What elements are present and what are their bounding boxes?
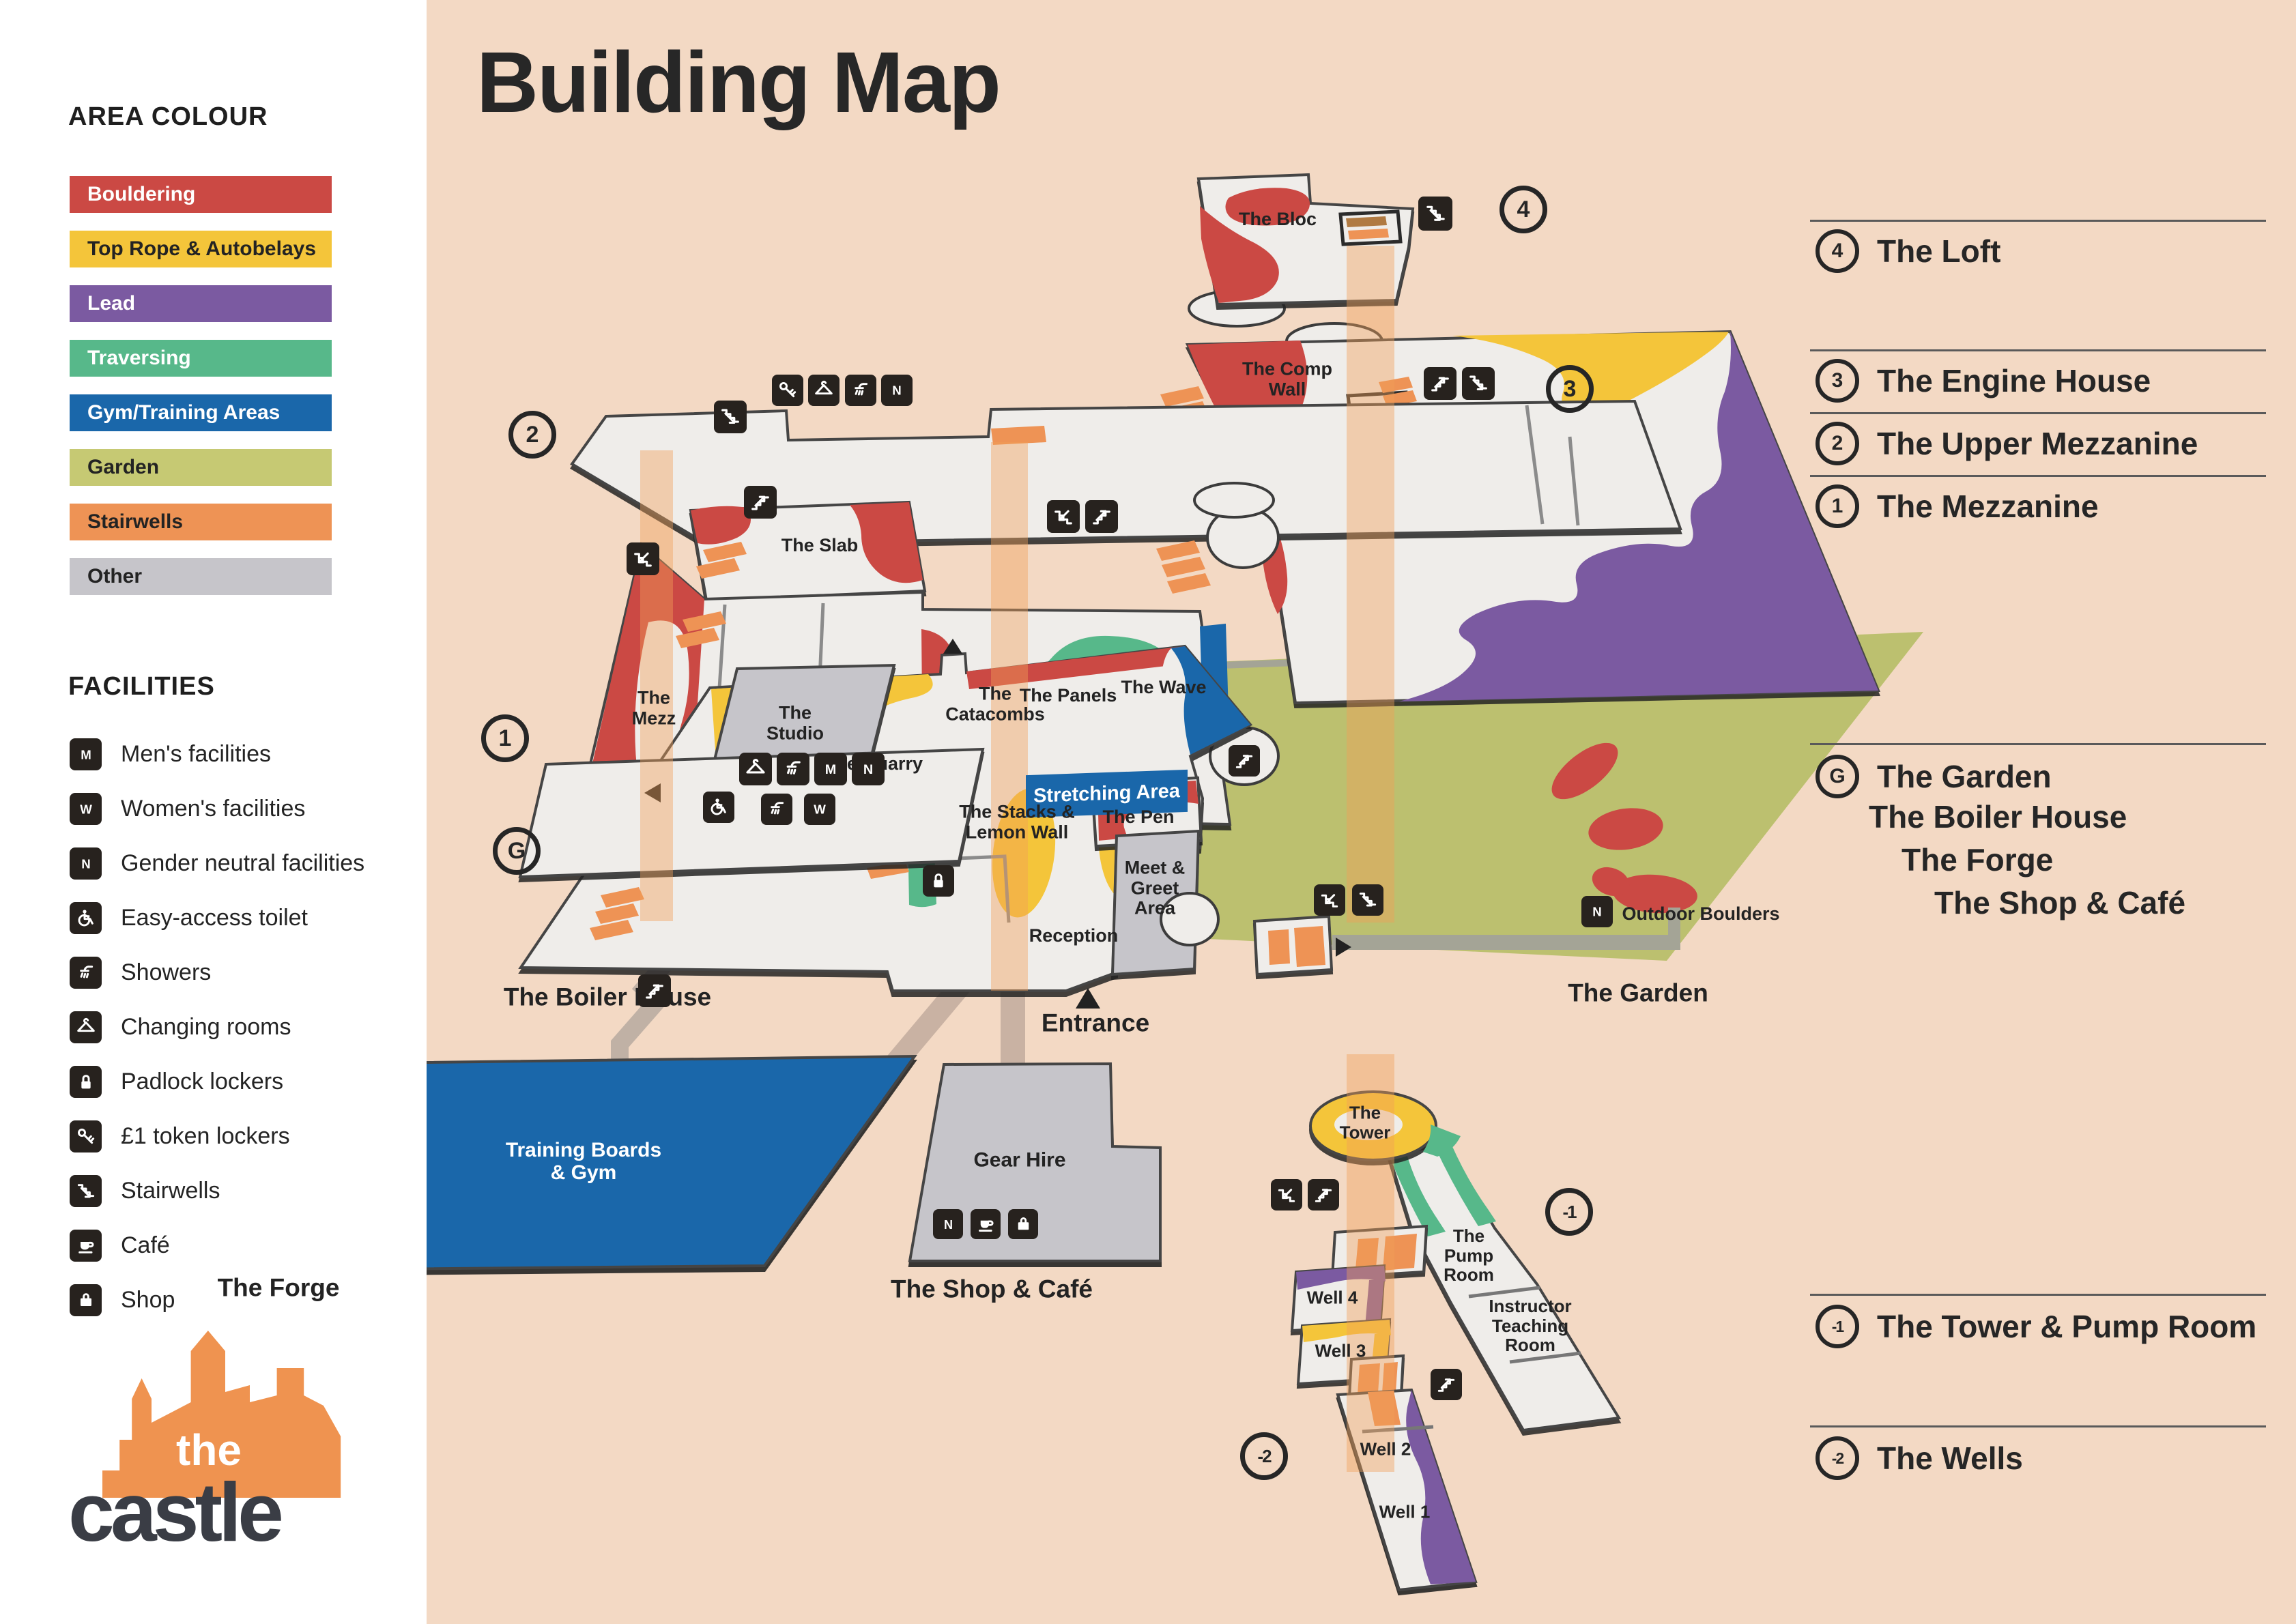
legend-swatch-lead: Lead (70, 285, 332, 322)
pump-room-plate (1389, 1144, 1619, 1430)
easy-access-icon (70, 902, 102, 934)
garden-stairwell-ramp (1294, 926, 1325, 967)
label-wave: The Wave (1121, 678, 1206, 698)
gender-neutral-icon: N (881, 375, 913, 406)
token-icon (772, 375, 803, 406)
facility-label: Stairwells (121, 1178, 220, 1204)
map-floor-badge-3: 3 (1546, 365, 1594, 413)
stairwell-downleft-icon (627, 542, 659, 575)
label-comp-wall: The Comp Wall (1233, 359, 1342, 399)
floor-4-badge: 4 (1816, 229, 1859, 273)
svg-text:N: N (1592, 905, 1601, 919)
showers-icon (761, 794, 792, 825)
legend-swatch-other: Other (70, 558, 332, 595)
facility-label: Padlock lockers (121, 1069, 283, 1095)
floor-g-line3: The Forge (1902, 841, 2053, 878)
floor-label-mezzanine: 1 The Mezzanine (1816, 484, 2099, 528)
label-garden: The Garden (1568, 980, 1708, 1008)
floor-2-badge: 2 (1816, 422, 1859, 465)
legend-swatch-label: Lead (87, 292, 135, 315)
womens-icon: W (70, 793, 102, 825)
floor-g-badge: G (1816, 755, 1859, 798)
facility-label: Gender neutral facilities (121, 850, 364, 877)
logo-castle: castle (68, 1464, 280, 1560)
stairwell-up-icon (1229, 745, 1260, 777)
floor-label-tower-pump: -1 The Tower & Pump Room (1816, 1305, 2256, 1348)
legend-swatch-label: Gym/Training Areas (87, 401, 280, 424)
label-outdoor-boulders: Outdoor Boulders (1622, 904, 1780, 925)
floor-label-wells: -2 The Wells (1816, 1436, 2023, 1480)
svg-text:N: N (81, 856, 90, 871)
svg-text:W: W (80, 802, 92, 816)
floor-label-ground: G The Garden (1816, 755, 2052, 798)
stairwell-downleft-icon (1271, 1179, 1302, 1210)
reception-path (885, 991, 971, 1059)
divider (1810, 1425, 2266, 1427)
facility-label: Men's facilities (121, 741, 271, 768)
facility-row-gender-neutral: NGender neutral facilities (70, 847, 364, 880)
floor-g-line4: The Shop & Café (1934, 884, 2185, 921)
label-pen: The Pen (1102, 807, 1174, 828)
easy-access-icon (703, 792, 734, 823)
legend-swatch-gym-training-areas: Gym/Training Areas (70, 394, 332, 431)
label-well4: Well 4 (1307, 1288, 1358, 1308)
legend-swatch-garden: Garden (70, 449, 332, 486)
label-well2: Well 2 (1360, 1440, 1411, 1460)
mens-icon: M (814, 753, 847, 785)
facility-label: Easy-access toilet (121, 905, 308, 931)
label-panels: The Panels (1020, 686, 1117, 706)
stairwell-up-icon (1431, 1369, 1462, 1400)
label-bloc: The Bloc (1239, 209, 1317, 230)
floor-minus2-badge: -2 (1816, 1436, 1859, 1480)
mezz-right-stair-ramp (1156, 540, 1211, 594)
floor-label-loft: 4 The Loft (1816, 229, 2000, 273)
area-colour-legend: BoulderingTop Rope & AutobelaysLeadTrave… (70, 176, 332, 613)
gender-neutral-icon: N (1581, 896, 1613, 927)
legend-swatch-bouldering: Bouldering (70, 176, 332, 213)
label-slab: The Slab (781, 536, 859, 556)
facilities-legend: MMen's facilitiesWWomen's facilitiesNGen… (70, 738, 364, 1339)
map-floor-badge-G: G (493, 827, 541, 875)
legend-swatch-top-rope-autobelays: Top Rope & Autobelays (70, 231, 332, 267)
stairwell-up-icon (1424, 367, 1456, 400)
legend-swatch-label: Bouldering (87, 183, 195, 206)
map-floor-badge-4: 4 (1499, 186, 1547, 233)
legend-swatch-label: Garden (87, 456, 159, 479)
token-icon (70, 1120, 102, 1152)
showers-icon (70, 957, 102, 989)
facility-row-token: £1 token lockers (70, 1120, 364, 1152)
facility-label: Shop (121, 1287, 175, 1314)
stairwell-down-icon (1462, 367, 1495, 400)
label-well3: Well 3 (1315, 1342, 1366, 1361)
map-floor-badge-2: 2 (508, 411, 556, 459)
entrance-path (1001, 991, 1025, 1067)
svg-text:M: M (81, 747, 91, 762)
gender-neutral-icon: N (852, 753, 885, 785)
floor-4-name: The Loft (1877, 233, 2000, 270)
facility-row-mens: MMen's facilities (70, 738, 364, 770)
svg-text:M: M (825, 762, 837, 777)
legend-swatch-stairwells: Stairwells (70, 504, 332, 540)
showers-icon (777, 753, 809, 785)
svg-text:W: W (814, 802, 826, 817)
changing-icon (739, 753, 772, 785)
floor-3-name: The Engine House (1877, 362, 2151, 399)
shop-icon (1008, 1209, 1038, 1239)
label-shop-cafe: The Shop & Café (891, 1276, 1093, 1304)
map-floor-badge-1: 1 (481, 714, 529, 762)
womens-icon: W (804, 794, 835, 825)
gender-neutral-icon: N (933, 1209, 963, 1239)
label-studio: The Studio (756, 703, 835, 743)
comp-mat-oval (1194, 483, 1274, 517)
divider (1810, 412, 2266, 414)
legend-sidebar: AREA COLOUR BoulderingTop Rope & Autobel… (0, 0, 427, 1624)
label-entrance: Entrance (1042, 1010, 1149, 1038)
divider (1810, 349, 2266, 351)
label-forge: The Forge (218, 1275, 340, 1303)
changing-icon (70, 1011, 102, 1043)
gender-neutral-icon: N (70, 847, 102, 880)
changing-icon (808, 375, 840, 406)
stairwell-down-icon (1352, 884, 1383, 916)
label-stacks: The Stacks & Lemon Wall (944, 802, 1091, 842)
entrance-marker (1076, 988, 1100, 1009)
legend-swatch-label: Other (87, 565, 142, 588)
area-colour-title: AREA COLOUR (68, 102, 268, 132)
padlock-icon (923, 865, 954, 897)
facility-label: £1 token lockers (121, 1123, 290, 1150)
divider (1810, 475, 2266, 477)
label-mezz: The Mezz (623, 688, 685, 728)
label-training-boards: Training Boards & Gym (502, 1139, 665, 1184)
facility-row-changing: Changing rooms (70, 1011, 364, 1043)
label-pump-room: The Pump Room (1431, 1226, 1506, 1285)
label-boiler-house: The Boiler House (504, 984, 711, 1012)
facility-row-easy-access: Easy-access toilet (70, 902, 364, 934)
divider (1810, 743, 2266, 745)
castle-logo: the castle (68, 1331, 355, 1597)
garden-stairwell-treads (1268, 929, 1290, 965)
label-instructor: Instructor Teaching Room (1465, 1296, 1595, 1355)
label-gear-hire: Gear Hire (973, 1149, 1065, 1172)
facility-row-womens: WWomen's facilities (70, 793, 364, 825)
stairwell-down-icon (714, 401, 747, 433)
floor-minus2-name: The Wells (1877, 1440, 2023, 1477)
facility-row-padlock: Padlock lockers (70, 1066, 364, 1098)
cafe-icon (971, 1209, 1001, 1239)
map-floor-badge--2: -2 (1240, 1432, 1288, 1480)
padlock-icon (70, 1066, 102, 1098)
facility-label: Showers (121, 959, 211, 986)
facility-label: Café (121, 1232, 170, 1259)
legend-swatch-label: Traversing (87, 347, 191, 370)
stairwell-up-icon (1085, 500, 1118, 533)
svg-text:N: N (943, 1217, 952, 1231)
stairwell-downleft-icon (1314, 884, 1345, 916)
svg-text:N: N (863, 762, 873, 777)
floor-1-name: The Mezzanine (1877, 488, 2099, 525)
upper-mezzanine-stair-ramp (991, 426, 1046, 445)
legend-swatch-label: Top Rope & Autobelays (87, 237, 316, 261)
showers-icon (845, 375, 876, 406)
facility-row-stairwell: Stairwells (70, 1175, 364, 1207)
label-tower: The Tower (1328, 1103, 1403, 1142)
page-title: Building Map (476, 33, 1000, 132)
facility-label: Changing rooms (121, 1014, 291, 1041)
map-floor-badge--1: -1 (1545, 1188, 1593, 1236)
stairwell-up-icon (1308, 1179, 1339, 1210)
facility-row-cafe: Café (70, 1230, 364, 1262)
building-map-page: AREA COLOUR BoulderingTop Rope & Autobel… (0, 0, 2296, 1624)
floor-minus1-name: The Tower & Pump Room (1877, 1308, 2256, 1345)
mens-icon: M (70, 738, 102, 770)
label-well1: Well 1 (1379, 1503, 1431, 1522)
floor-1-badge: 1 (1816, 484, 1859, 528)
svg-text:N: N (892, 383, 901, 398)
facilities-title: FACILITIES (68, 672, 215, 701)
facility-label: Women's facilities (121, 796, 305, 822)
floor-label-engine-house: 3 The Engine House (1816, 359, 2151, 403)
legend-swatch-label: Stairwells (87, 510, 183, 534)
stairwell-icon (70, 1175, 102, 1207)
floor-g-name: The Garden (1877, 758, 2052, 795)
stairwell-up-icon (744, 486, 777, 519)
label-meet-greet: Meet & Greet Area (1114, 858, 1196, 918)
stairwell-up-icon (638, 974, 671, 1007)
stairwell-downleft-icon (1047, 500, 1080, 533)
shop-icon (70, 1284, 102, 1316)
floor-minus1-badge: -1 (1816, 1305, 1859, 1348)
floor-3-badge: 3 (1816, 359, 1859, 403)
legend-swatch-traversing: Traversing (70, 340, 332, 377)
label-reception: Reception (1029, 926, 1119, 946)
stairwell-down-icon (1418, 197, 1452, 231)
floor-g-line2: The Boiler House (1869, 798, 2127, 835)
cafe-icon (70, 1230, 102, 1262)
divider (1810, 1294, 2266, 1296)
facility-row-showers: Showers (70, 957, 364, 989)
divider (1810, 220, 2266, 222)
floor-label-upper-mezzanine: 2 The Upper Mezzanine (1816, 422, 2198, 465)
floor-2-name: The Upper Mezzanine (1877, 425, 2198, 462)
